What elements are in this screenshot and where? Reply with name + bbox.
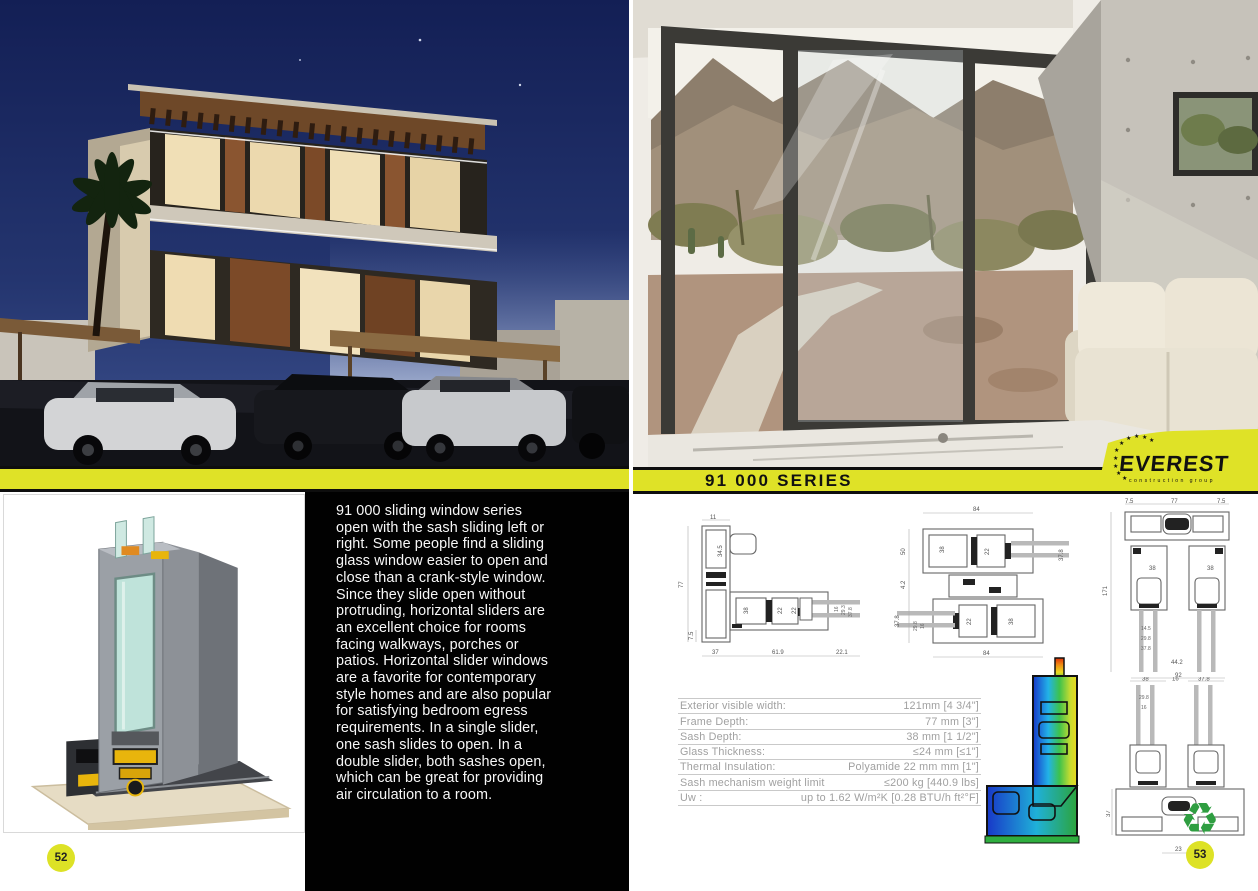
svg-text:★: ★ (1134, 433, 1139, 440)
svg-text:23: 23 (1175, 847, 1182, 853)
svg-text:29.3: 29.3 (841, 605, 847, 615)
svg-text:★: ★ (1113, 463, 1118, 470)
sliding-door-photo (633, 0, 1258, 467)
spec-row-exterior-width: Exterior visible width: 121mm [4 3/4"] (678, 699, 981, 714)
svg-text:16: 16 (1141, 705, 1147, 711)
svg-text:11: 11 (710, 515, 717, 521)
svg-text:38: 38 (1009, 618, 1015, 625)
catalog-spread: 52 91 000 sliding window series open wit… (0, 0, 1258, 891)
svg-text:77: 77 (679, 581, 685, 588)
svg-text:★: ★ (1122, 475, 1127, 482)
spec-table: Exterior visible width: 121mm [4 3/4"] F… (678, 698, 981, 806)
svg-text:29.8: 29.8 (1139, 695, 1149, 701)
profile-render-frame (3, 494, 305, 833)
svg-text:16: 16 (920, 623, 926, 629)
left-series-band (0, 469, 629, 489)
svg-text:37.8: 37.8 (895, 615, 901, 627)
svg-text:7.5: 7.5 (689, 631, 695, 640)
svg-text:16: 16 (1172, 677, 1179, 683)
svg-text:84: 84 (973, 507, 980, 513)
svg-text:44.2: 44.2 (1171, 660, 1183, 666)
svg-text:★: ★ (1149, 437, 1154, 444)
page-number-53-label: 53 (1194, 849, 1207, 861)
svg-text:37: 37 (712, 650, 719, 656)
spec-row-thermal-insulation: Thermal Insulation: Polyamide 22 mm mm [… (678, 760, 981, 775)
svg-text:77: 77 (1171, 499, 1178, 505)
svg-text:★: ★ (1142, 434, 1147, 441)
svg-text:34.5: 34.5 (718, 545, 724, 557)
villa-dusk-photo (0, 0, 629, 466)
svg-text:38: 38 (744, 607, 750, 614)
page-number-52-label: 52 (55, 852, 68, 864)
svg-text:37.8: 37.8 (1059, 549, 1065, 561)
thermal-simulation (983, 656, 1093, 854)
svg-text:38: 38 (1207, 566, 1214, 572)
profile-3d-render (4, 495, 302, 830)
svg-text:22: 22 (985, 548, 991, 555)
svg-text:7.5: 7.5 (1125, 499, 1134, 505)
svg-text:16: 16 (834, 606, 840, 612)
series-description: 91 000 sliding window series open with t… (336, 503, 551, 804)
drawing-vertical-section-top: 7.5 77 7.5 171 38 38 44.2 92 14.5 29.8 3… (1097, 496, 1258, 682)
page-number-53: 53 (1186, 841, 1214, 869)
svg-text:29.8: 29.8 (1141, 636, 1151, 642)
svg-text:38: 38 (1142, 677, 1149, 683)
drawing-horizontal-section-1: 11 34.5 77 7.5 37 61.9 22.1 38 22 22 16 … (672, 512, 864, 664)
spec-row-glass-thickness: Glass Thickness: ≤24 mm [≤1"] (678, 745, 981, 760)
svg-text:29.8: 29.8 (913, 621, 919, 631)
logo-tagline: construction group (1129, 478, 1215, 484)
svg-text:22.1: 22.1 (836, 650, 848, 656)
wall-window (1173, 92, 1258, 176)
svg-text:22: 22 (967, 618, 973, 625)
svg-text:171: 171 (1103, 585, 1109, 596)
svg-text:22: 22 (792, 607, 798, 614)
svg-text:★: ★ (1114, 447, 1119, 454)
svg-text:37.8: 37.8 (1198, 677, 1210, 683)
svg-text:14.5: 14.5 (1141, 626, 1151, 632)
spec-row-weight-limit: Sash mechanism weight limit ≤200 kg [440… (678, 775, 981, 790)
logo-brand: EVEREST (1118, 451, 1230, 476)
svg-text:★: ★ (1126, 435, 1131, 442)
svg-text:50: 50 (901, 548, 907, 555)
svg-text:4.2: 4.2 (901, 580, 907, 589)
description-panel: 91 000 sliding window series open with t… (305, 492, 629, 891)
series-title: 91 000 SERIES (705, 471, 853, 491)
everest-logo: ★★★ ★★★ ★★★ ★ EVEREST construction group (1093, 429, 1258, 493)
svg-text:7.5: 7.5 (1217, 499, 1226, 505)
svg-text:★: ★ (1113, 455, 1118, 462)
recycle-icon: ♻ (1180, 798, 1219, 842)
svg-text:37.8: 37.8 (848, 607, 854, 617)
svg-text:37.8: 37.8 (1141, 646, 1151, 652)
svg-text:22: 22 (778, 607, 784, 614)
spec-row-uw: Uw : up to 1.62 W/m²K [0.28 BTU/h ft²°F] (678, 791, 981, 806)
svg-text:★: ★ (1119, 440, 1124, 447)
svg-text:37: 37 (1106, 810, 1112, 817)
svg-text:38: 38 (940, 546, 946, 553)
page-number-52: 52 (47, 844, 75, 872)
svg-text:61.9: 61.9 (772, 650, 784, 656)
spec-row-frame-depth: Frame Depth: 77 mm [3"] (678, 714, 981, 729)
drawing-horizontal-section-2: 84 50 4.2 37.8 38 22 22 38 37.8 84 29.8 … (893, 503, 1073, 665)
spec-row-sash-depth: Sash Depth: 38 mm [1 1/2"] (678, 730, 981, 745)
svg-text:38: 38 (1149, 566, 1156, 572)
